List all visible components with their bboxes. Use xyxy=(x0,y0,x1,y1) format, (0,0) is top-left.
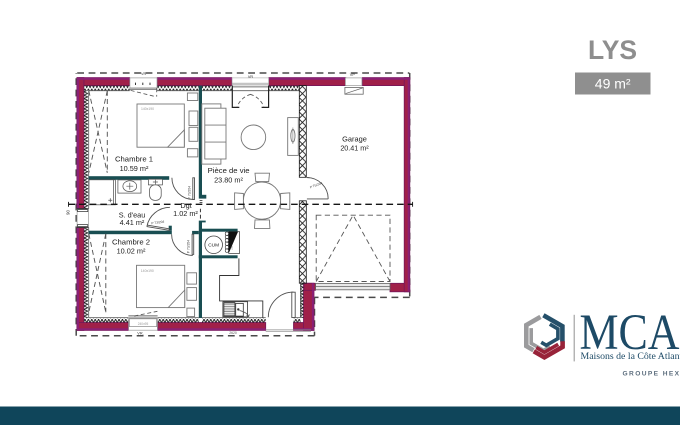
svg-text:VR: VR xyxy=(248,75,254,79)
svg-text:Chambre 1: Chambre 1 xyxy=(115,155,153,164)
svg-text:23.80 m²: 23.80 m² xyxy=(214,176,243,185)
svg-text:CUM: CUM xyxy=(208,243,219,249)
svg-text:P 73/204: P 73/204 xyxy=(186,240,190,253)
svg-text:VP: VP xyxy=(350,73,356,77)
svg-text:P 73/204: P 73/204 xyxy=(188,186,192,199)
svg-text:20.41 m²: 20.41 m² xyxy=(340,143,369,152)
svg-text:140x190: 140x190 xyxy=(141,107,154,111)
svg-text:10.59 m²: 10.59 m² xyxy=(120,164,149,173)
svg-text:Maisons de la Côte Atlantique: Maisons de la Côte Atlantique xyxy=(581,351,680,362)
svg-text:2620: 2620 xyxy=(229,331,237,335)
svg-text:VR.: VR. xyxy=(137,332,143,336)
svg-text:LYS: LYS xyxy=(588,35,637,65)
svg-text:Chambre 2: Chambre 2 xyxy=(112,237,150,246)
svg-text:49 m²: 49 m² xyxy=(595,76,631,92)
svg-text:240x95: 240x95 xyxy=(138,322,149,326)
svg-text:ch: ch xyxy=(230,246,234,250)
svg-text:VR: VR xyxy=(141,72,147,76)
svg-text:Garage: Garage xyxy=(342,135,367,144)
svg-text:Pièce de vie: Pièce de vie xyxy=(208,166,250,175)
svg-text:4.41 m²: 4.41 m² xyxy=(120,218,145,227)
svg-text:140x190: 140x190 xyxy=(141,269,154,273)
svg-text:10.02 m²: 10.02 m² xyxy=(117,246,146,255)
svg-text:GROUPE HEXAŌM: GROUPE HEXAŌM xyxy=(623,370,680,378)
svg-text:1.02 m²: 1.02 m² xyxy=(173,209,198,218)
svg-text:90: 90 xyxy=(66,210,71,215)
